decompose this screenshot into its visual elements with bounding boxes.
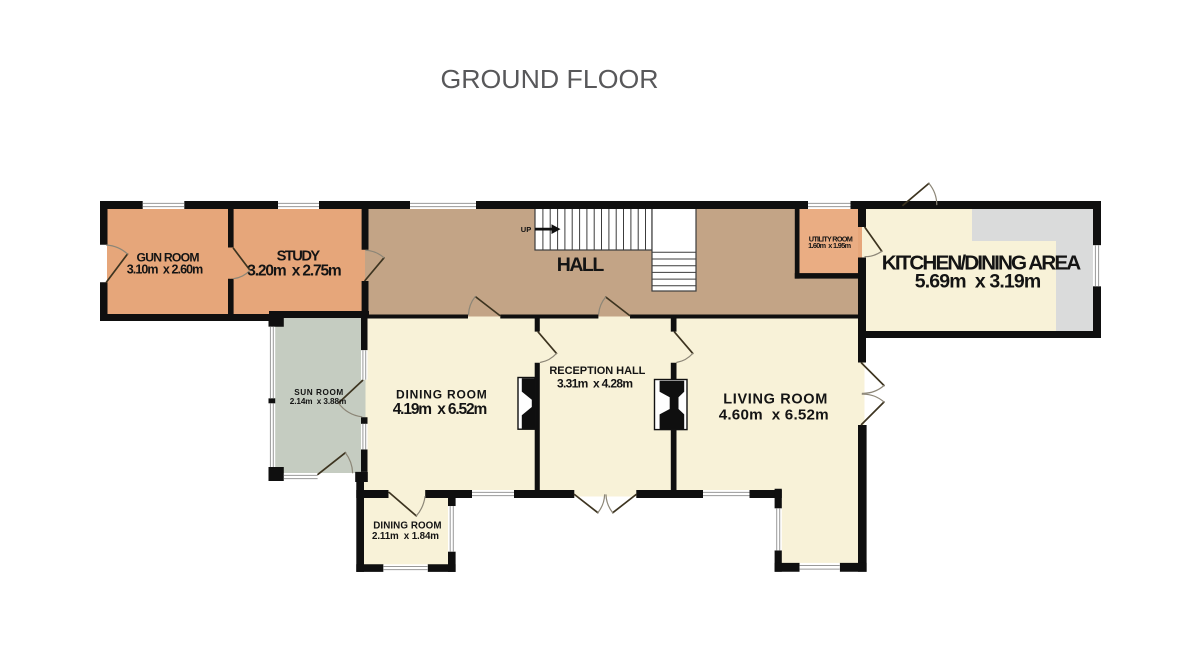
svg-text:HALL: HALL xyxy=(557,254,605,276)
svg-text:DINING ROOM: DINING ROOM xyxy=(373,520,441,531)
svg-text:1.60m x 1.95m: 1.60m x 1.95m xyxy=(808,241,852,250)
svg-text:UP: UP xyxy=(521,225,531,234)
svg-text:2.11m x 1.84m: 2.11m x 1.84m xyxy=(372,531,439,542)
svg-text:LIVING ROOM: LIVING ROOM xyxy=(723,391,827,407)
svg-text:3.10m x 2.60m: 3.10m x 2.60m xyxy=(127,262,204,276)
svg-text:RECEPTION HALL: RECEPTION HALL xyxy=(549,365,645,377)
svg-text:4.19m x 6.52m: 4.19m x 6.52m xyxy=(393,401,488,418)
svg-text:3.20m x 2.75m: 3.20m x 2.75m xyxy=(247,262,341,279)
svg-text:GROUND FLOOR: GROUND FLOOR xyxy=(441,64,659,94)
svg-text:5.69m x 3.19m: 5.69m x 3.19m xyxy=(915,270,1042,292)
svg-text:4.60m x 6.52m: 4.60m x 6.52m xyxy=(719,406,829,423)
svg-text:3.31m x 4.28m: 3.31m x 4.28m xyxy=(557,377,633,391)
svg-text:DINING ROOM: DINING ROOM xyxy=(396,388,487,402)
svg-text:SUN ROOM: SUN ROOM xyxy=(294,388,343,397)
svg-text:2.14m x 3.88m: 2.14m x 3.88m xyxy=(290,397,347,406)
